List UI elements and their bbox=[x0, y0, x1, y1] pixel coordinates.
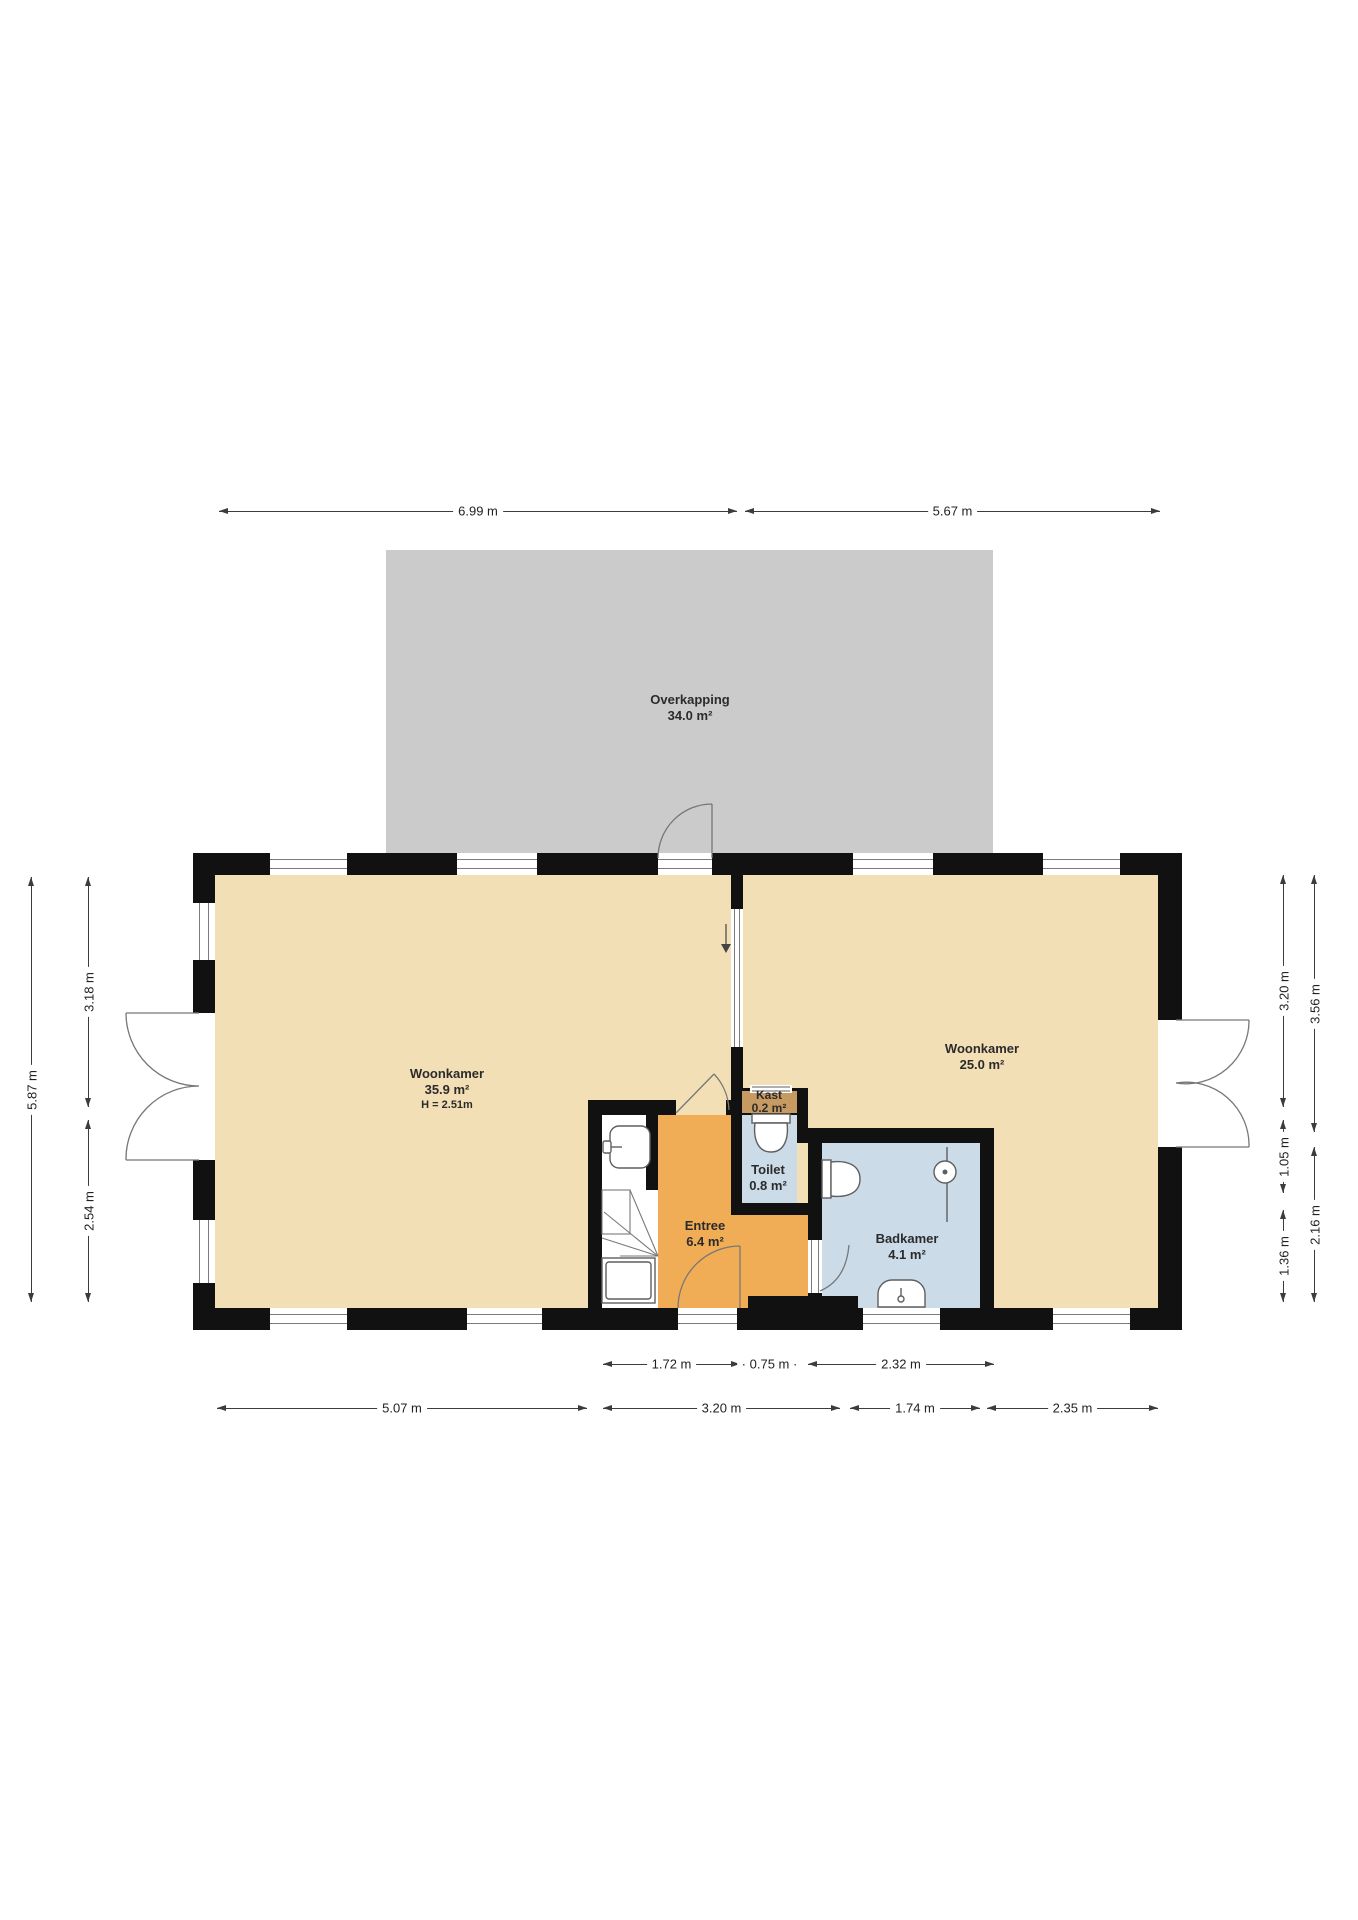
dim-left-total: 5.87 m bbox=[31, 877, 32, 1302]
dim-label: 3.56 m bbox=[1307, 979, 1322, 1029]
dim-top-1: 6.99 m bbox=[219, 511, 737, 512]
room-ceiling-height: H = 2.51m bbox=[410, 1098, 484, 1112]
washer-icon bbox=[602, 1258, 655, 1303]
room-area: 0.2 m² bbox=[752, 1102, 787, 1115]
dim-bottom-outer-4: 2.35 m bbox=[987, 1408, 1158, 1409]
dim-label: 5.87 m bbox=[24, 1065, 39, 1115]
dim-label: 3.20 m bbox=[1276, 966, 1291, 1016]
woonkamer-left-label: Woonkamer 35.9 m² H = 2.51m bbox=[410, 1066, 484, 1112]
room-area: 4.1 m² bbox=[876, 1247, 939, 1263]
dim-label: 2.16 m bbox=[1307, 1200, 1322, 1250]
dim-bottom-outer-1: 5.07 m bbox=[217, 1408, 587, 1409]
room-area: 0.8 m² bbox=[749, 1178, 787, 1194]
dim-label: 6.99 m bbox=[453, 504, 503, 519]
overkapping-label: Overkapping 34.0 m² bbox=[650, 692, 729, 725]
badkamer-label: Badkamer 4.1 m² bbox=[876, 1231, 939, 1264]
dim-right-2: 1.05 m bbox=[1283, 1120, 1284, 1193]
dim-right-5: 2.16 m bbox=[1314, 1147, 1315, 1302]
dim-label: 3.20 m bbox=[697, 1401, 747, 1416]
dim-label: 1.36 m bbox=[1276, 1231, 1291, 1281]
woonkamer-right-label: Woonkamer 25.0 m² bbox=[945, 1041, 1019, 1074]
dim-label: 2.32 m bbox=[876, 1357, 926, 1372]
dim-label: 3.18 m bbox=[81, 967, 96, 1017]
badkamer-toilet-icon bbox=[822, 1160, 860, 1198]
dim-right-3: 1.36 m bbox=[1283, 1210, 1284, 1302]
dim-right-1: 3.20 m bbox=[1283, 875, 1284, 1107]
dim-bottom-inner-2: · 0.75 m · bbox=[742, 1364, 797, 1365]
dim-bottom-outer-3: 1.74 m bbox=[850, 1408, 980, 1409]
room-name: Woonkamer bbox=[945, 1041, 1019, 1057]
dim-right-4: 3.56 m bbox=[1314, 875, 1315, 1132]
room-name: Entree bbox=[685, 1218, 725, 1234]
dim-left-upper: 3.18 m bbox=[88, 877, 89, 1107]
dim-bottom-inner-3: 2.32 m bbox=[808, 1364, 994, 1365]
kast-label: Kast 0.2 m² bbox=[752, 1089, 787, 1115]
radiator-icon bbox=[878, 1280, 925, 1307]
room-name: Woonkamer bbox=[410, 1066, 484, 1082]
room-area: 34.0 m² bbox=[650, 708, 729, 724]
room-name: Overkapping bbox=[650, 692, 729, 708]
room-area: 25.0 m² bbox=[945, 1057, 1019, 1073]
fixtures-and-doors bbox=[0, 0, 1358, 1920]
dim-left-lower: 2.54 m bbox=[88, 1120, 89, 1302]
dim-label: 5.67 m bbox=[928, 504, 978, 519]
dim-value: 0.75 m bbox=[750, 1357, 790, 1372]
room-area: 6.4 m² bbox=[685, 1234, 725, 1250]
toilet-label: Toilet 0.8 m² bbox=[749, 1162, 787, 1195]
dim-bottom-outer-2: 3.20 m bbox=[603, 1408, 840, 1409]
room-name: Badkamer bbox=[876, 1231, 939, 1247]
dim-label: 2.54 m bbox=[81, 1186, 96, 1236]
room-area: 35.9 m² bbox=[410, 1082, 484, 1098]
dim-top-2: 5.67 m bbox=[745, 511, 1160, 512]
stairs-icon bbox=[602, 1190, 658, 1256]
dim-bottom-inner-1: 1.72 m bbox=[603, 1364, 740, 1365]
dim-label: 1.72 m bbox=[647, 1357, 697, 1372]
sink-icon bbox=[603, 1126, 650, 1168]
dim-label: 1.05 m bbox=[1276, 1132, 1291, 1182]
shower-icon bbox=[934, 1147, 956, 1222]
dim-label: · 0.75 m · bbox=[737, 1357, 803, 1372]
toilet-icon bbox=[752, 1114, 790, 1152]
dim-label: 2.35 m bbox=[1048, 1401, 1098, 1416]
dim-label: 1.74 m bbox=[890, 1401, 940, 1416]
entree-label: Entree 6.4 m² bbox=[685, 1218, 725, 1251]
sliding-partition-arrow bbox=[721, 924, 731, 953]
dim-label: 5.07 m bbox=[377, 1401, 427, 1416]
floorplan-canvas: Overkapping 34.0 m² Woonkamer 35.9 m² H … bbox=[0, 0, 1358, 1920]
room-name: Toilet bbox=[749, 1162, 787, 1178]
